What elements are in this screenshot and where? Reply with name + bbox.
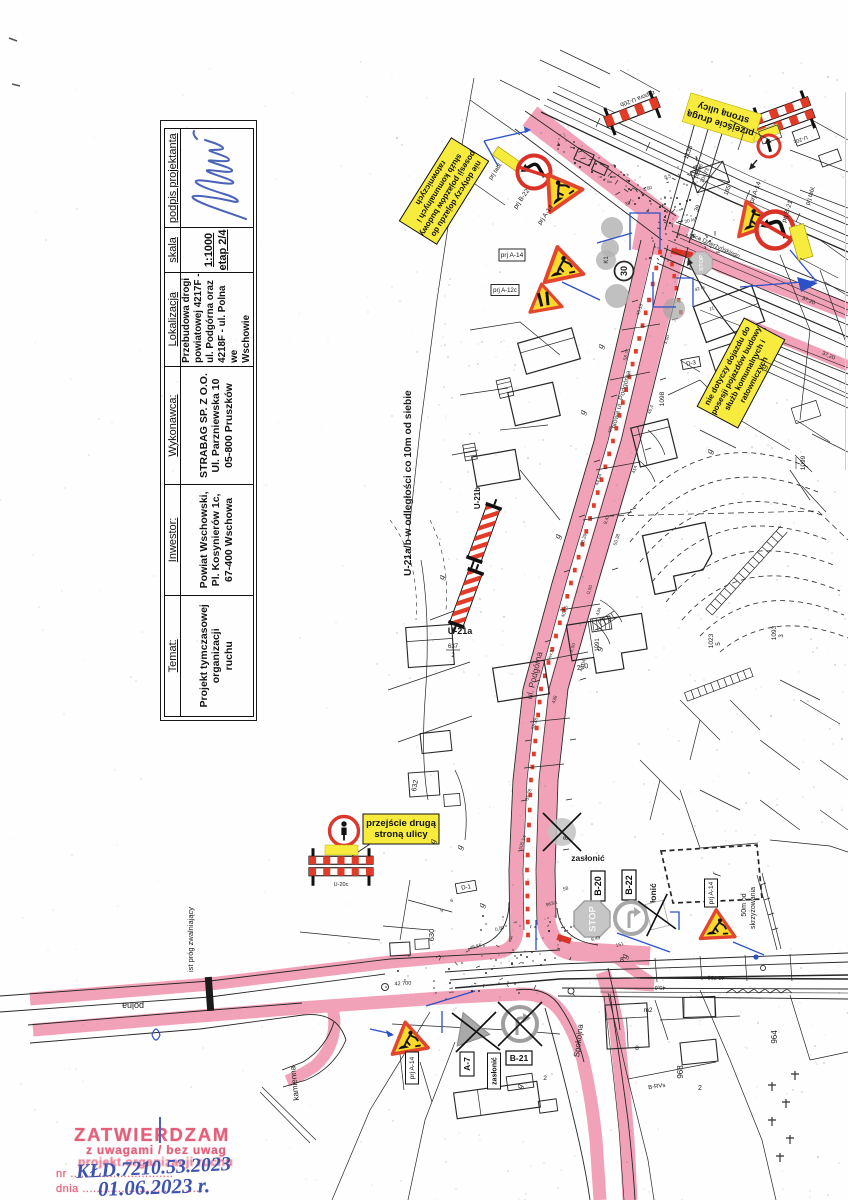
svg-text:prj A-14: prj A-14 — [748, 180, 762, 204]
svg-text:1023: 1023 — [708, 633, 715, 648]
svg-text:632: 632 — [411, 779, 420, 792]
svg-text:g: g — [436, 573, 447, 580]
svg-text:U-20c: U-20c — [334, 882, 349, 888]
svg-text:B-21: B-21 — [510, 1053, 529, 1063]
svg-text:6: 6 — [450, 898, 454, 905]
svg-text:42 lę: 42 lę — [694, 285, 706, 294]
svg-text:g: g — [454, 843, 465, 850]
svg-text:434: 434 — [595, 607, 603, 617]
svg-text:przejście drugą: przejście drugą — [366, 818, 436, 829]
svg-text:m2: m2 — [643, 1007, 652, 1014]
svg-text:B-RVs: B-RVs — [648, 1083, 666, 1091]
svg-text:39: 39 — [694, 204, 702, 213]
svg-text:630: 630 — [427, 929, 436, 942]
svg-text:U-21b: U-21b — [473, 487, 482, 509]
svg-text:g: g — [552, 532, 563, 539]
svg-text:prj A-14: prj A-14 — [409, 1056, 416, 1079]
svg-text:0,50: 0,50 — [494, 925, 505, 933]
svg-text:zasłonić: zasłonić — [491, 1057, 498, 1085]
svg-text:8: 8 — [635, 1045, 639, 1052]
svg-text:prj B-22: prj B-22 — [512, 187, 531, 210]
svg-text:skrzyżowania: skrzyżowania — [750, 887, 757, 929]
svg-text:8: 8 — [563, 836, 570, 840]
svg-text:3: 3 — [779, 634, 785, 638]
svg-text:zasłonić: zasłonić — [571, 853, 605, 863]
svg-text:50m od: 50m od — [741, 893, 748, 916]
svg-text:polna: polna — [122, 1001, 144, 1011]
svg-text:g: g — [704, 447, 715, 454]
svg-text:prj A-14: prj A-14 — [501, 252, 524, 259]
svg-text:3,50: 3,50 — [642, 185, 653, 193]
svg-text:42 700: 42 700 — [394, 981, 411, 988]
svg-text:g: g — [595, 342, 606, 349]
svg-text:2: 2 — [451, 653, 455, 659]
svg-text:prj A-14: prj A-14 — [536, 204, 555, 227]
svg-text:B-22: B-22 — [624, 875, 634, 895]
svg-text:2: 2 — [698, 1085, 702, 1092]
svg-text:9: 9 — [440, 908, 444, 915]
svg-text:1098: 1098 — [659, 391, 666, 406]
svg-text:g: g — [577, 408, 588, 415]
svg-text:stroną ulicy: stroną ulicy — [374, 829, 428, 840]
svg-text:8,5: 8,5 — [664, 173, 672, 181]
svg-text:5: 5 — [716, 642, 722, 646]
svg-text:637: 637 — [448, 644, 459, 650]
svg-text:2: 2 — [543, 1075, 547, 1082]
svg-text:ist próg zwalniający: ist próg zwalniający — [186, 907, 195, 972]
svg-text:50,38: 50,38 — [612, 533, 622, 547]
svg-text:968: 968 — [676, 1065, 685, 1079]
svg-text:prj tabl.: prj tabl. — [488, 161, 504, 181]
svg-text:U-21a/b w odległości co 10m od: U-21a/b w odległości co 10m od siebie — [403, 390, 414, 576]
svg-text:58: 58 — [562, 885, 569, 892]
svg-text:42 700: 42 700 — [708, 974, 725, 980]
svg-text:U-21a: U-21a — [448, 626, 474, 636]
svg-text:prj A-14: prj A-14 — [708, 881, 715, 904]
svg-text:30: 30 — [619, 266, 629, 276]
svg-text:45,0: 45,0 — [655, 984, 666, 990]
svg-text:1093: 1093 — [771, 625, 778, 640]
svg-text:g: g — [476, 901, 487, 908]
svg-text:964: 964 — [770, 1030, 779, 1044]
svg-text:A-7: A-7 — [462, 1057, 472, 1071]
svg-text:20 lą: 20 lą — [684, 217, 696, 226]
svg-text:f: f — [711, 871, 722, 877]
svg-text:prj A-12c: prj A-12c — [493, 288, 517, 294]
svg-text:K1: K1 — [604, 256, 610, 264]
svg-text:1099: 1099 — [800, 455, 807, 470]
svg-text:58,39: 58,39 — [579, 533, 589, 547]
svg-text:B-20: B-20 — [593, 876, 603, 896]
